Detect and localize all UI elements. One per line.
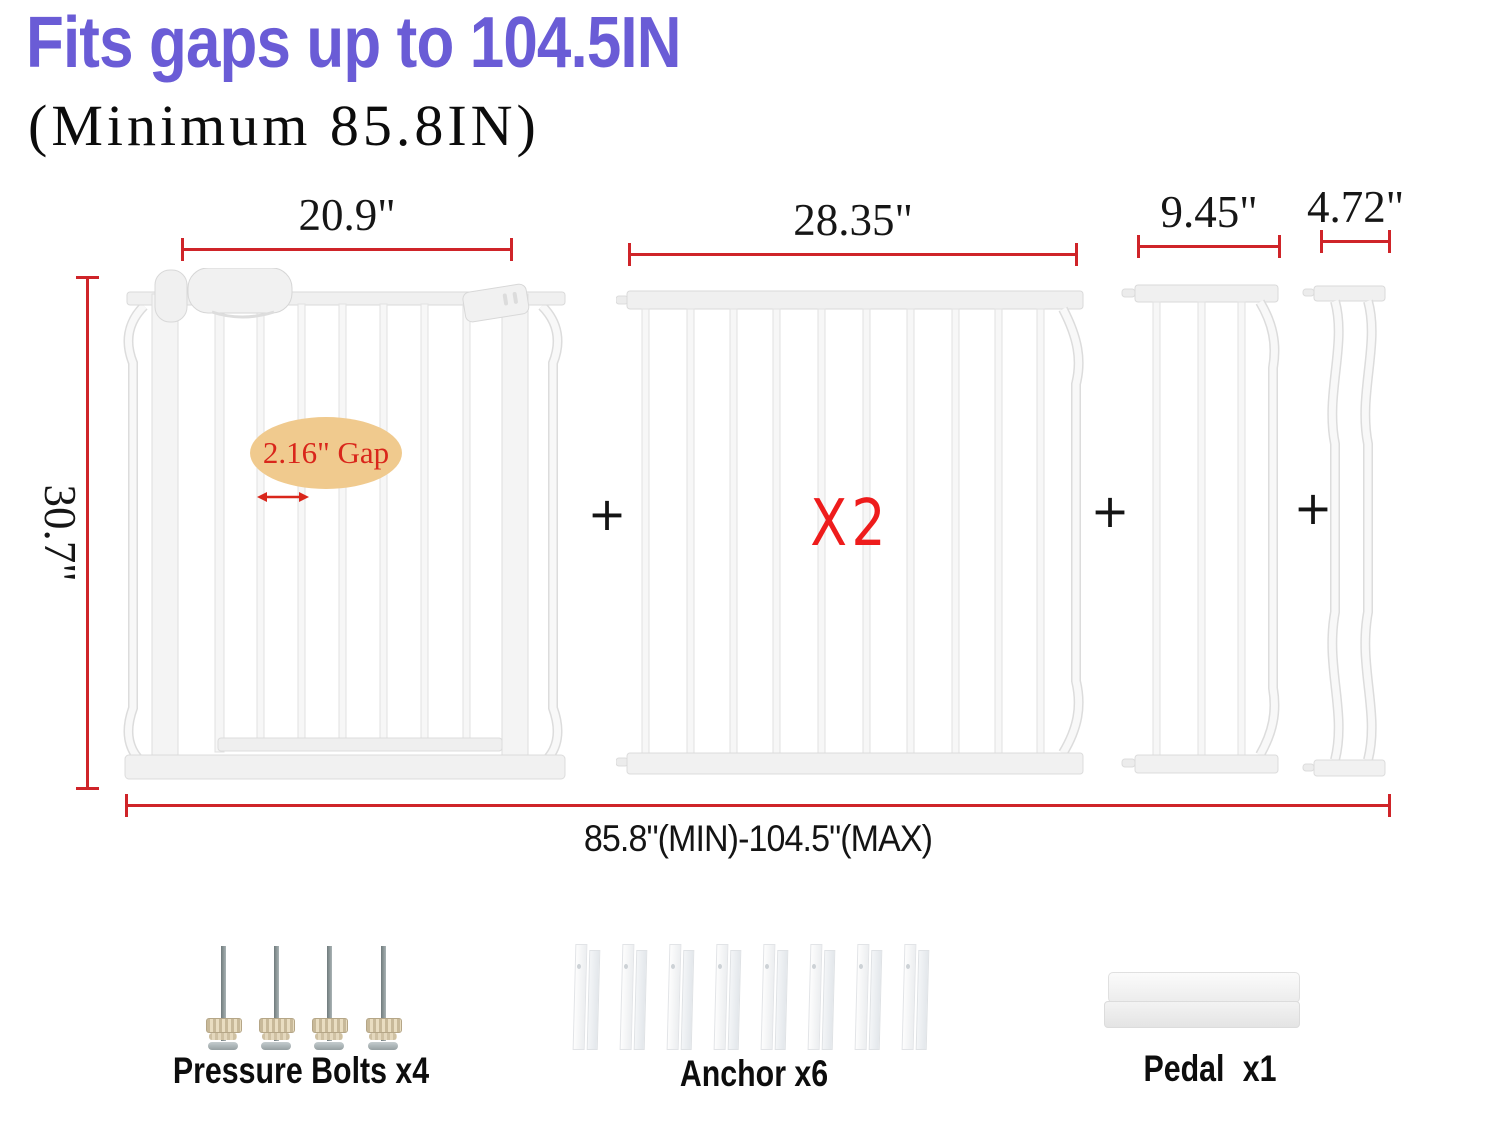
rail-peg [1303,289,1314,296]
anchor-strip [714,944,729,1050]
gap-callout: 2.16" Gap [250,417,402,489]
plus-sign: + [1091,484,1130,538]
top-rail [1135,285,1278,302]
door-bar [421,304,428,745]
anchor-strip [775,950,789,1050]
dim-line-panel3: 9.45" [1137,245,1281,248]
pedal-label: Pedal x1 [1144,1048,1277,1090]
page-title: Fits gaps up to 104.5IN [26,2,681,84]
anchor-strip [855,944,870,1050]
dim-tick [1075,243,1078,266]
anchor-hole [765,964,769,969]
anchor-icon [807,944,837,1048]
anchor-strip [681,950,695,1050]
bolt-nut [369,1033,397,1040]
pressure-bolt-icon [204,946,242,1050]
dim-line-panel4: 4.72" [1320,240,1391,243]
bolt-nut [312,1018,348,1033]
anchor-icon [572,944,602,1048]
door-bar [380,304,387,745]
dim-tick [76,787,99,790]
anchor-strip [667,944,682,1050]
hinge-knob [155,270,187,322]
plus-sign: + [588,487,627,541]
anchor-hole [859,964,863,969]
bolt-nut [209,1033,237,1040]
curved-bar [1365,301,1371,760]
bottom-rail [1314,760,1385,776]
gate-handle [188,268,292,313]
anchor-strip [869,950,883,1050]
dim-tick [125,794,128,817]
bolt-cap [368,1042,398,1050]
bar [907,309,914,753]
bar [687,309,694,753]
bar [642,309,649,753]
door-bar [463,304,470,745]
bolt-nut [315,1033,343,1040]
door-bottom-rail [218,738,502,751]
rail-peg [1122,759,1135,767]
anchors-label: Anchor x6 [680,1053,828,1095]
dim-tick [1137,235,1140,258]
bar [773,309,780,753]
anchor-strip [808,944,823,1050]
dim-label-panel4: 4.72" [1307,181,1404,233]
anchor-icon [619,944,649,1048]
dim-tick [1388,794,1391,817]
anchor-hole [577,964,581,969]
dim-label-panel2: 28.35" [793,194,913,246]
frame-bar [542,306,558,764]
dim-tick [1388,230,1391,253]
plus-sign: + [1294,481,1333,535]
right-post [502,294,528,777]
top-rail [627,291,1083,309]
curved-bar [1332,301,1338,760]
anchor-strip [587,950,601,1050]
bar [1198,302,1205,755]
dim-line-total: 85.8"(MIN)-104.5"(MAX) [125,804,1391,807]
rail-peg [1122,289,1135,297]
anchor-icon [713,944,743,1048]
dim-tick [1278,235,1281,258]
anchor-strip [902,944,917,1050]
dim-tick [628,243,631,266]
left-post [152,294,178,777]
bar [952,309,959,753]
bolt-nut [259,1018,295,1033]
dim-tick [76,276,99,279]
bar [1037,309,1044,753]
bolt-nut [206,1018,242,1033]
dim-tick [1320,230,1323,253]
anchor-strip [916,950,930,1050]
anchor-icon [666,944,696,1048]
pressure-bolt-icon [310,946,348,1050]
pedal-icon [1108,972,1300,1003]
anchor-hole [671,964,675,969]
bar [730,309,737,753]
gate-panel-main-door [112,268,574,784]
bolt-nut [366,1018,402,1033]
anchor-strip [761,944,776,1050]
anchor-strip [620,944,635,1050]
bar [1153,302,1160,755]
anchor-icon [854,944,884,1048]
door-edge-bar [215,304,224,752]
anchor-icon [760,944,790,1048]
anchor-strip [634,950,648,1050]
anchor-strip [822,950,836,1050]
dim-label-panel3: 9.45" [1160,186,1257,238]
rail-peg [616,296,628,304]
bottom-rail [1135,755,1278,773]
anchor-strip [573,944,588,1050]
bolt-nut [262,1033,290,1040]
product-dimension-diagram: Fits gaps up to 104.5IN (Minimum 85.8IN)… [0,0,1500,1125]
bolt-cap [208,1042,238,1050]
door-bar [298,304,305,745]
bar [995,309,1002,753]
curved-bar [1260,302,1274,755]
bolt-cap [261,1042,291,1050]
pressure-bolt-icon [257,946,295,1050]
anchor-hole [718,964,722,969]
anchor-strip [728,950,742,1050]
door-bar [339,304,346,745]
bottom-rail [627,753,1083,774]
dim-line-panel2: 28.35" [628,253,1078,256]
rail-peg [1303,764,1314,771]
bottom-rail [125,755,565,779]
dim-line-panel1: 20.9" [181,248,513,251]
rail-peg [616,758,628,766]
dim-label-panel1: 20.9" [298,189,395,241]
curved-bar [1063,309,1079,753]
dim-line-height: 30.7" [86,276,89,790]
dim-tick [181,238,184,261]
anchor-hole [906,964,910,969]
dim-tick [510,238,513,261]
pressure-bolt-icon [364,946,402,1050]
bolts-label: Pressure Bolts x4 [173,1050,429,1092]
gate-panel-extension-medium [1120,280,1285,780]
multiplier-x2: X2 [810,487,889,561]
top-rail [1314,286,1385,301]
dim-label-total: 85.8"(MIN)-104.5"(MAX) [584,818,932,860]
pedal-icon [1104,1001,1300,1028]
dim-label-height: 30.7" [34,484,86,581]
door-bar [257,304,264,745]
frame-bar [128,306,144,764]
anchor-hole [812,964,816,969]
bar [1238,302,1245,755]
anchor-icon [901,944,931,1048]
page-subtitle: (Minimum 85.8IN) [28,92,540,159]
gap-arrow-icon [256,489,310,505]
anchor-hole [624,964,628,969]
gap-label: 2.16" Gap [263,435,389,471]
bolt-cap [314,1042,344,1050]
